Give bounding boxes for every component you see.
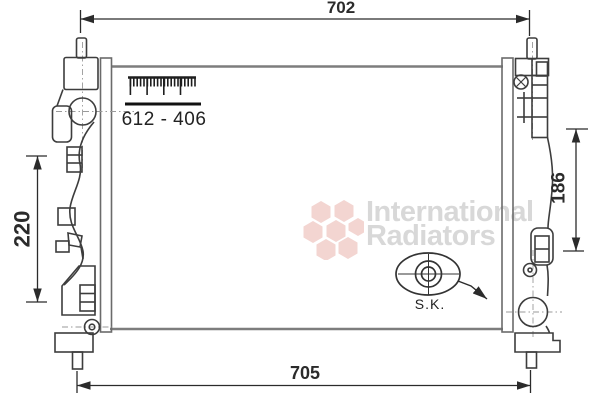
part-number: 612 - 406 [122,109,207,130]
radiator-diagram: 612 - 406 S.K. 702 705 [0,0,600,400]
dim-bottom-label: 705 [290,363,320,383]
centerlines [56,42,562,340]
dim-left-label: 220 [10,211,35,248]
dimension-top [81,10,530,36]
fin-symbol-icon [128,78,196,87]
dim-right-label: 186 [549,172,570,204]
sk-detail [396,253,487,299]
left-tank [53,38,100,369]
catalog-drawing-page: International Radiators [0,0,600,400]
dim-top-label: 702 [327,0,355,17]
sk-label: S.K. [415,296,445,312]
radiator-core [101,58,514,332]
